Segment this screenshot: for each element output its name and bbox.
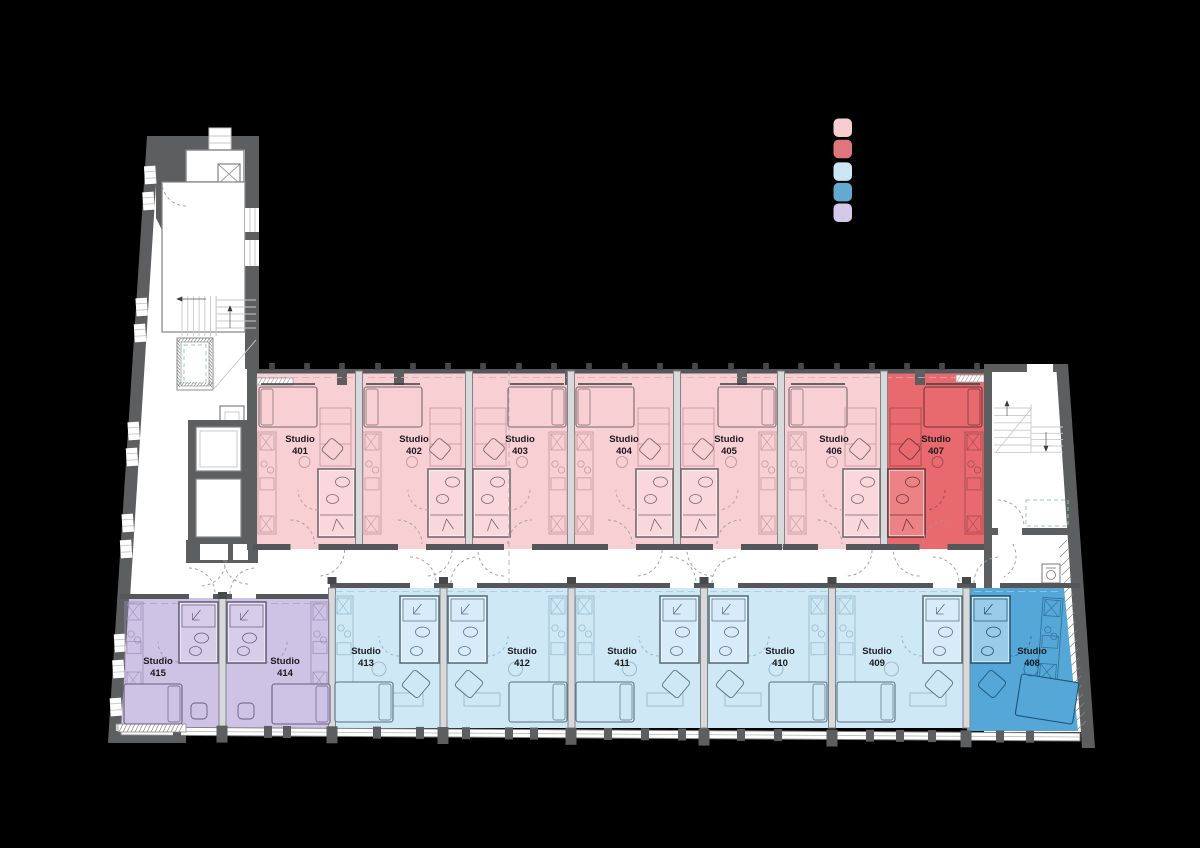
svg-text:Studio: Studio [819,434,849,445]
svg-text:Studio: Studio [714,434,744,445]
svg-text:Studio: Studio [609,434,639,445]
svg-text:403: 403 [512,446,528,457]
svg-text:Studio: Studio [505,434,535,445]
svg-text:402: 402 [406,446,422,457]
svg-text:410: 410 [772,658,788,669]
svg-text:Studio: Studio [285,434,315,445]
svg-text:Studio: Studio [765,646,795,657]
svg-text:407: 407 [928,446,944,457]
svg-text:Studio: Studio [143,656,173,667]
svg-text:Studio: Studio [921,434,951,445]
svg-text:411: 411 [614,658,630,669]
svg-text:413: 413 [358,658,374,669]
svg-text:Studio: Studio [270,656,300,667]
svg-text:412: 412 [514,658,530,669]
svg-text:415: 415 [150,668,167,679]
svg-text:Studio: Studio [351,646,381,657]
svg-text:414: 414 [277,668,294,679]
svg-text:Studio: Studio [1017,646,1047,657]
svg-text:406: 406 [826,446,842,457]
svg-text:Studio: Studio [607,646,637,657]
svg-text:401: 401 [292,446,309,457]
svg-text:404: 404 [616,446,633,457]
svg-text:Studio: Studio [862,646,892,657]
svg-text:Studio: Studio [399,434,429,445]
svg-text:408: 408 [1024,658,1040,669]
svg-text:Studio: Studio [507,646,537,657]
svg-text:409: 409 [869,658,885,669]
svg-text:405: 405 [721,446,738,457]
